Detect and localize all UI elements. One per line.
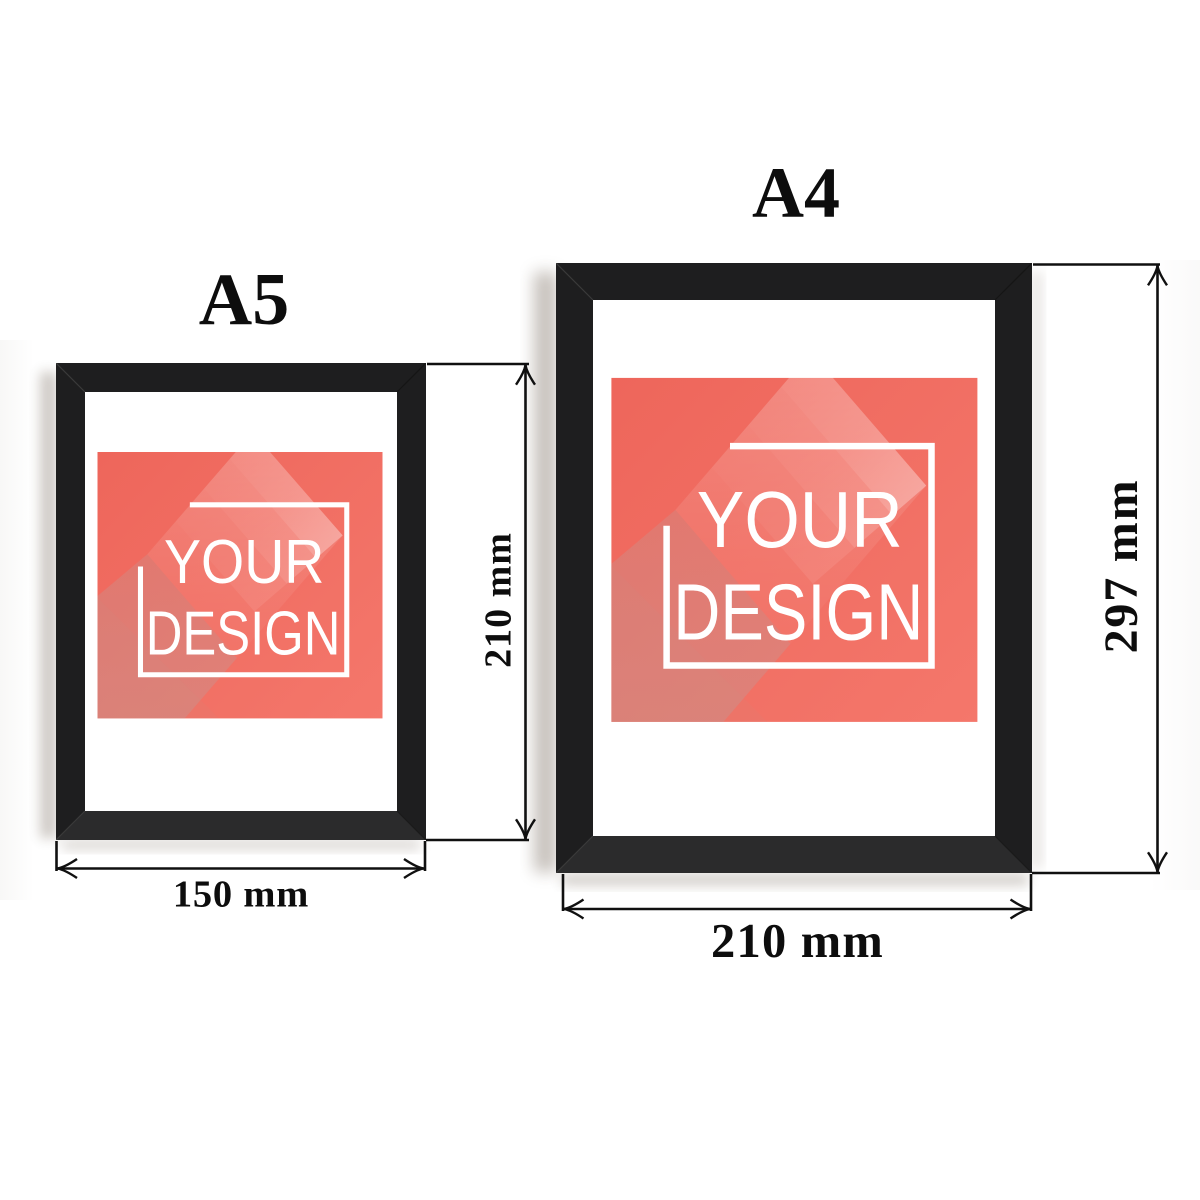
svg-text:210 mm: 210 mm [711, 915, 884, 968]
svg-text:150 mm: 150 mm [173, 874, 309, 916]
svg-text:210 mm: 210 mm [478, 532, 520, 668]
svg-text:297 mm: 297 mm [1095, 479, 1148, 654]
